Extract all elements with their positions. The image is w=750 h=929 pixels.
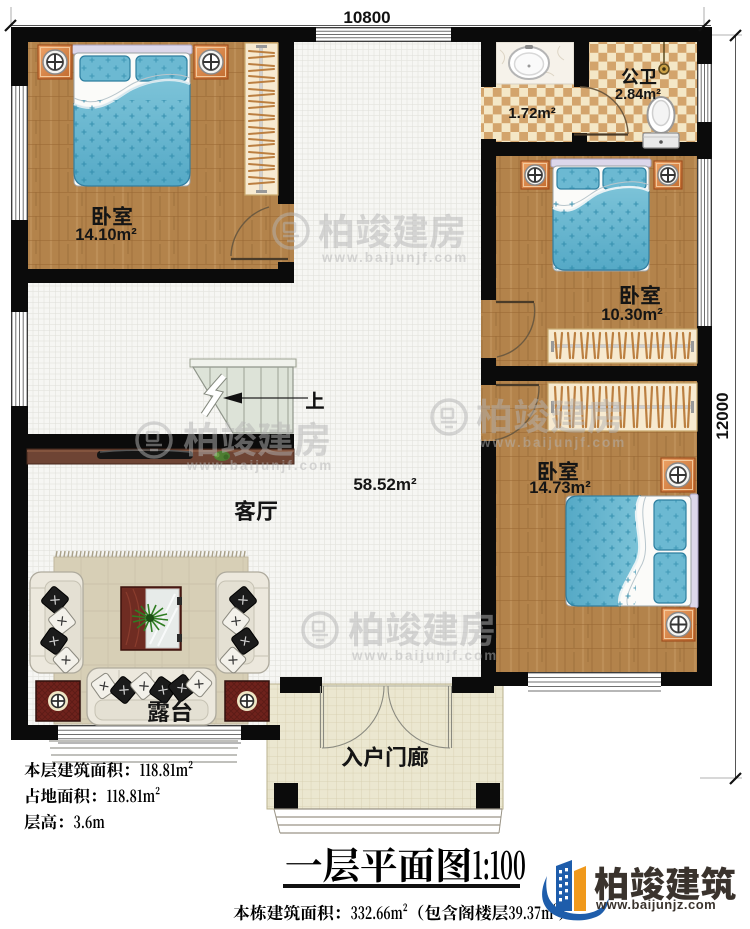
svg-text:2.84m²: 2.84m² (615, 87, 661, 103)
svg-text:14.10m²: 14.10m² (75, 226, 137, 244)
svg-text:www.baijunjz.com: www.baijunjz.com (595, 897, 716, 912)
svg-text:www.baijunjf.com: www.baijunjf.com (351, 648, 498, 663)
svg-text:10800: 10800 (343, 8, 390, 27)
svg-text:1.72m²: 1.72m² (508, 105, 556, 122)
svg-text:12000: 12000 (713, 392, 732, 439)
svg-text:www.baijunjf.com: www.baijunjf.com (186, 458, 333, 473)
svg-text:58.52m²: 58.52m² (353, 475, 417, 494)
svg-text:10.30m²: 10.30m² (601, 306, 663, 324)
svg-text:www.baijunjf.com: www.baijunjf.com (321, 250, 468, 265)
svg-text:14.73m²: 14.73m² (529, 479, 591, 497)
svg-text:www.baijunjf.com: www.baijunjf.com (479, 435, 626, 450)
